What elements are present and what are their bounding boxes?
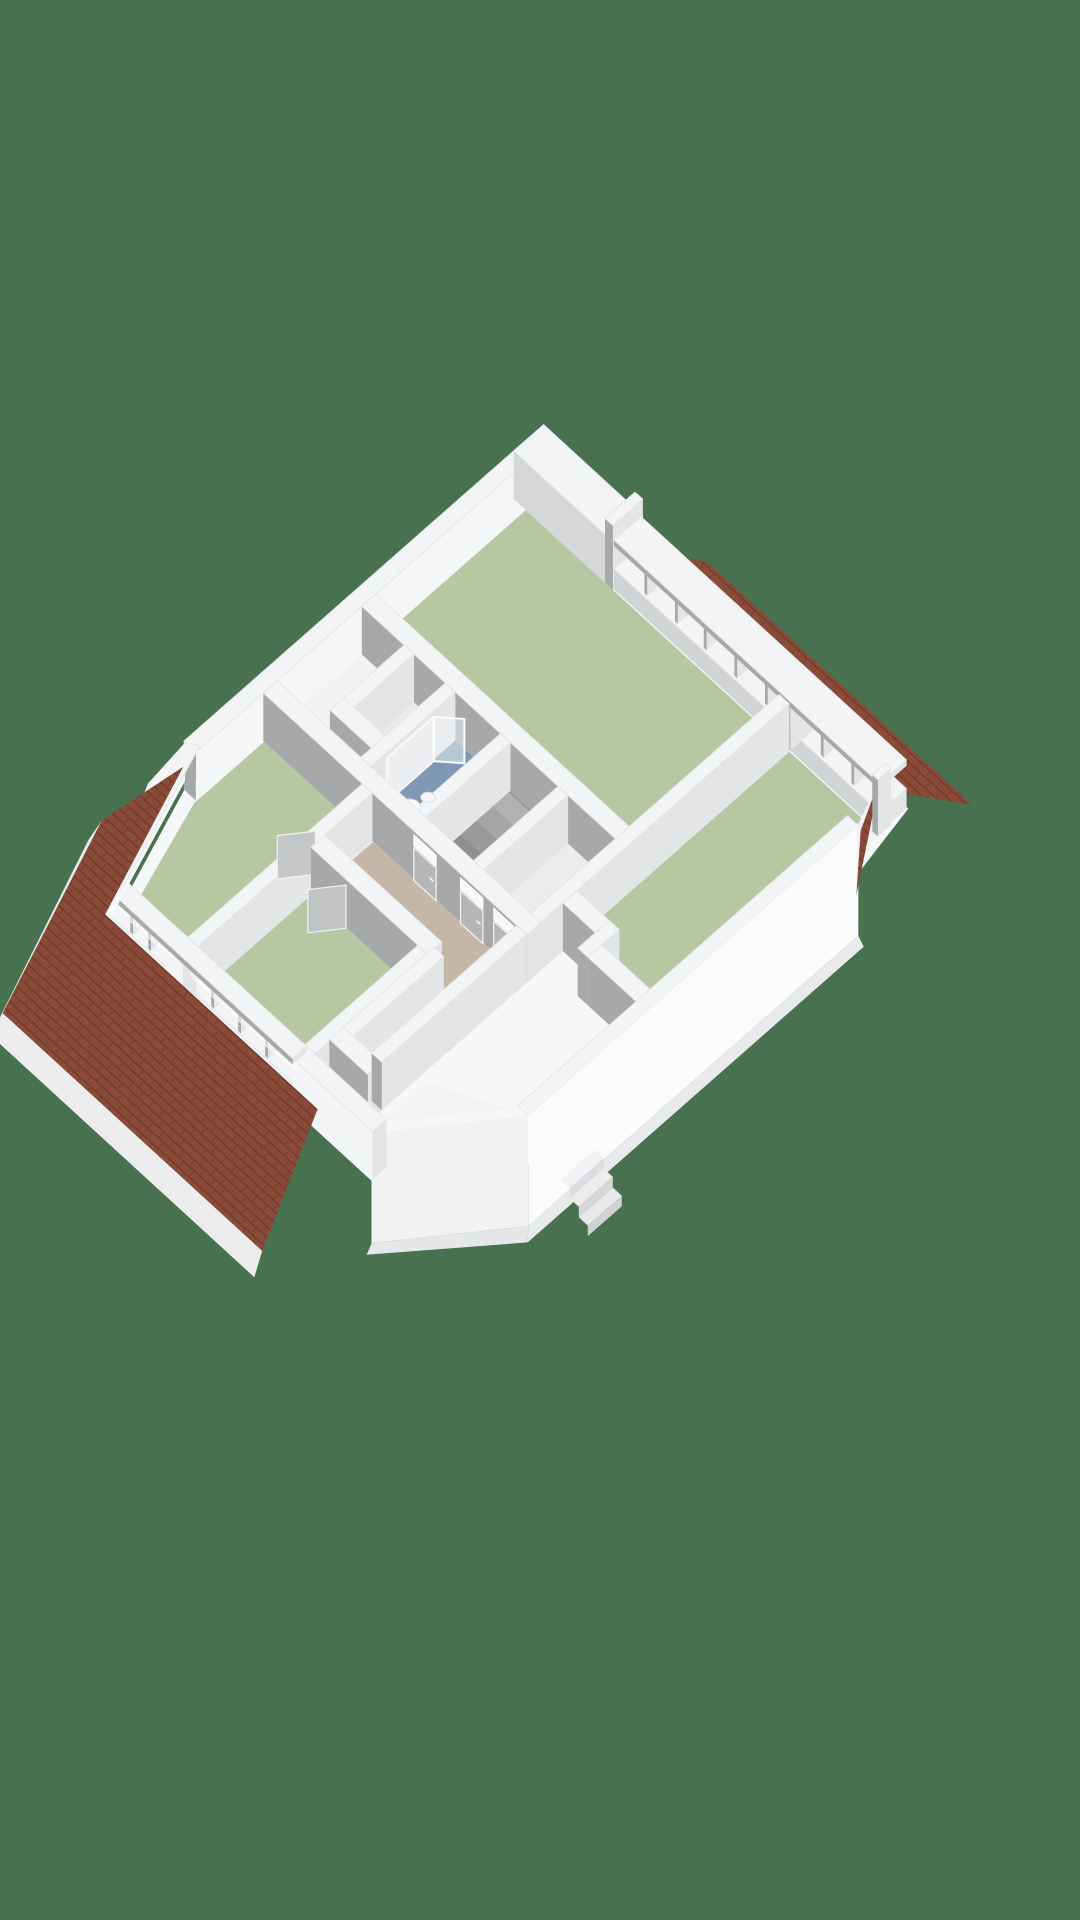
wall-facade-ne-tab xyxy=(605,518,613,590)
floor-plan-3d-view: 3D floor plan - upper floor xyxy=(0,0,1080,1920)
floor-plan-canvas xyxy=(0,0,1080,1920)
wall-stairhead-east xyxy=(372,1053,382,1110)
door-leaf-left-bedroom-open xyxy=(277,831,315,879)
shower-glass-door xyxy=(434,717,465,763)
wall-chamfer-bottom-outer xyxy=(372,1116,529,1244)
door-leaf-bottom-bedroom-open xyxy=(308,885,346,933)
wall-right-bedroom-step xyxy=(578,948,588,1005)
toilet-tank xyxy=(421,792,435,802)
corner-post-ne xyxy=(872,775,878,837)
